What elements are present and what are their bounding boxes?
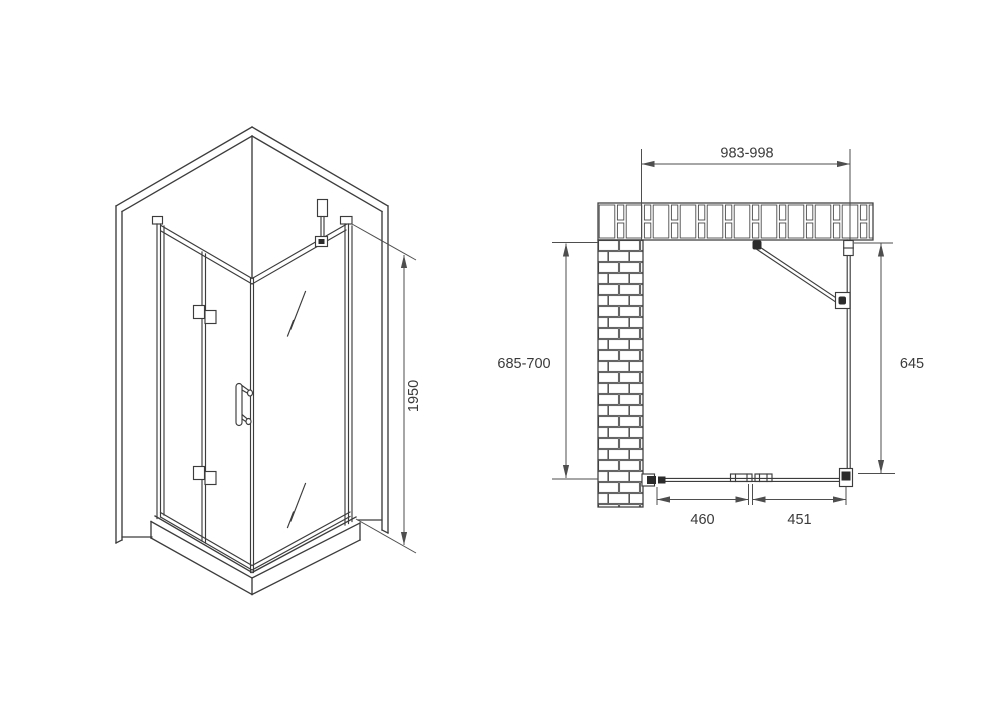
arrow-up-icon (401, 255, 407, 268)
plan-view: 983-998 685-700 645 460 (497, 146, 924, 529)
iso-right-post-cap (341, 217, 353, 225)
iso-door-hinge-upper (194, 306, 205, 319)
plan-dim-door-left: 460 (657, 484, 749, 528)
arrow-left-icon (657, 496, 670, 502)
arrow-down-icon (563, 465, 569, 478)
plan-hinge-block-2 (755, 474, 772, 482)
plan-wall-left (598, 240, 643, 507)
plan-support-bar (753, 241, 851, 309)
dim-width-label: 983-998 (720, 146, 773, 162)
iso-support-bar (316, 200, 328, 247)
arrow-down-icon (878, 460, 884, 473)
technical-drawing-page: 1950 (0, 0, 1000, 707)
iso-door-hinge-lower-2 (205, 472, 216, 485)
arrow-up-icon (878, 244, 884, 257)
arrow-down-icon (401, 532, 407, 545)
arrow-up-icon (563, 244, 569, 257)
arrow-right-icon (833, 496, 846, 502)
shower-enclosure-drawing: 1950 (0, 0, 1000, 707)
plan-wall-top (598, 203, 873, 240)
plan-folding-door (642, 469, 853, 487)
iso-view: 1950 (116, 127, 422, 595)
plan-fixed-panel (844, 240, 854, 469)
iso-left-post-cap (153, 217, 163, 225)
arrow-left-icon (753, 496, 766, 502)
plan-hinge-block-1 (731, 474, 753, 482)
plan-bar-wall-fitting (753, 241, 762, 250)
arrow-right-icon (736, 496, 749, 502)
dim-height-label: 1950 (406, 380, 422, 412)
iso-door-hinge-upper-2 (205, 311, 216, 324)
dim-left-depth-label: 685-700 (497, 356, 550, 372)
iso-dim-height: 1950 (352, 224, 422, 553)
iso-fixed-panel (252, 217, 352, 571)
plan-dim-right-depth: 645 (854, 243, 924, 474)
plan-dim-left-depth: 685-700 (497, 243, 598, 480)
arrow-left-icon (642, 161, 655, 167)
dim-door-left-label: 460 (690, 512, 714, 528)
iso-door-hinge-lower (194, 467, 205, 480)
arrow-right-icon (837, 161, 850, 167)
dim-door-right-label: 451 (787, 512, 811, 528)
plan-dim-door-right: 451 (753, 484, 847, 528)
iso-glass-shine-marks (288, 292, 306, 528)
dim-right-depth-label: 645 (900, 356, 924, 372)
